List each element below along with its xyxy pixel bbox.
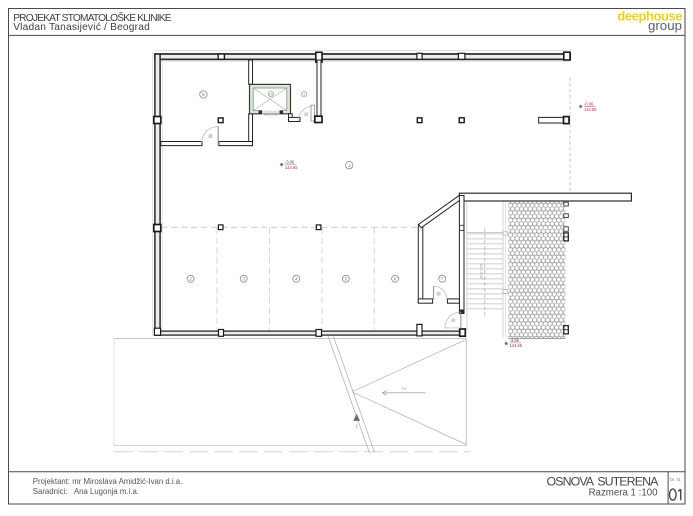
svg-text:Vladan Tanasijević / Beograd: Vladan Tanasijević / Beograd xyxy=(13,22,150,33)
svg-text:Razmera 1 :100: Razmera 1 :100 xyxy=(589,488,659,499)
svg-text:10: 10 xyxy=(269,93,273,97)
svg-text:OSNOVA SUTERENA: OSNOVA SUTERENA xyxy=(546,475,659,489)
svg-text:19x17/29: 19x17/29 xyxy=(480,264,484,280)
svg-text:Projektant: mr Miroslava Amidž: Projektant: mr Miroslava Amidžić-Ivan d.… xyxy=(33,477,183,486)
svg-text:Saradnici: Ana Lugonja m.i.a: Saradnici: Ana Lugonja m.i.a. xyxy=(33,487,139,496)
svg-text:144.65: 144.65 xyxy=(510,343,523,348)
svg-text:144.65: 144.65 xyxy=(285,165,298,170)
svg-text:9: 9 xyxy=(303,93,305,97)
svg-text:144.65: 144.65 xyxy=(584,107,597,112)
svg-text:7%: 7% xyxy=(401,387,407,391)
svg-text:br. st.: br. st. xyxy=(670,477,681,482)
svg-text:group: group xyxy=(648,18,682,33)
